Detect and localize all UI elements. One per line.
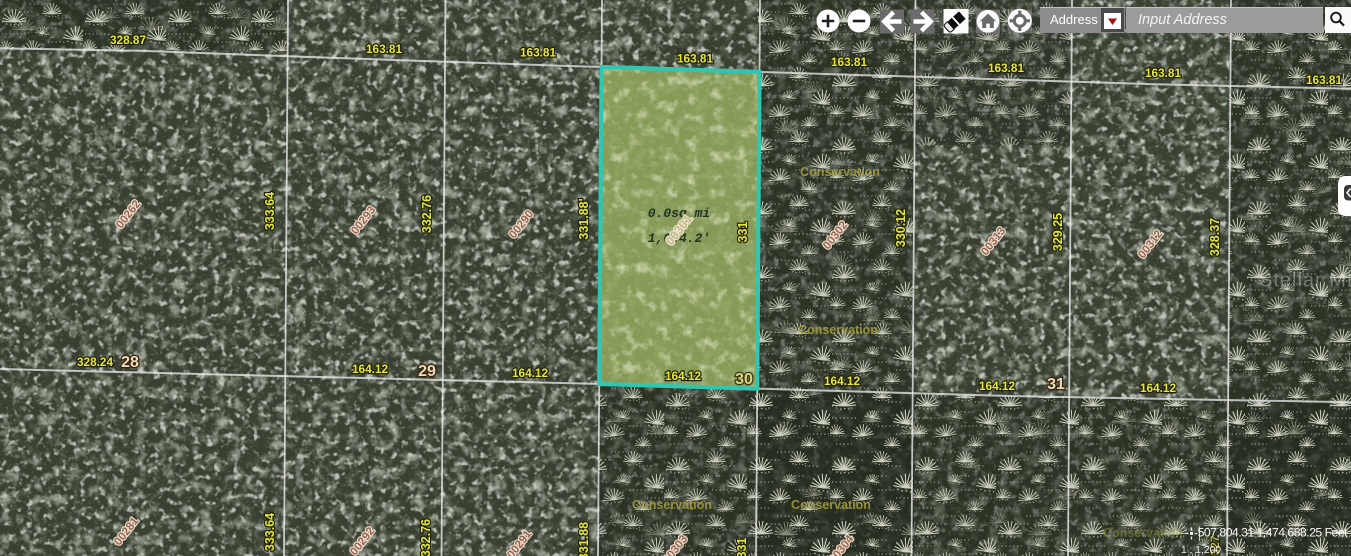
svg-text:331.88: 331.88 [577, 522, 591, 556]
svg-text:332.76: 332.76 [420, 195, 434, 233]
svg-text:333.64: 333.64 [263, 192, 277, 230]
svg-text:Conservation: Conservation [800, 165, 880, 179]
svg-text:164.12: 164.12 [824, 374, 861, 388]
svg-text:332.76: 332.76 [419, 519, 433, 556]
svg-text:328.37: 328.37 [1208, 218, 1222, 256]
svg-text:28: 28 [121, 354, 139, 371]
svg-text:331.88': 331.88' [577, 198, 591, 239]
svg-text:329.25: 329.25 [1051, 213, 1065, 251]
svg-text:328.24: 328.24 [77, 355, 114, 369]
svg-text:163.81: 163.81 [1306, 73, 1343, 87]
svg-text:Conservation: Conservation [791, 498, 871, 512]
svg-text:163.81: 163.81 [831, 55, 868, 69]
svg-text:Conservation: Conservation [798, 323, 878, 337]
svg-text:29: 29 [418, 363, 436, 380]
svg-text:30: 30 [735, 371, 753, 388]
svg-text:163.81: 163.81 [1145, 66, 1182, 80]
svg-text:31: 31 [1047, 376, 1065, 393]
svg-text:163.81: 163.81 [988, 61, 1025, 75]
svg-text:333.64: 333.64 [263, 513, 277, 551]
svg-text:1 : 1,200: 1 : 1,200 [1181, 545, 1221, 556]
svg-text:Conservation: Conservation [632, 498, 712, 512]
svg-text:164.12: 164.12 [512, 366, 549, 380]
svg-text:164.12: 164.12 [665, 369, 702, 383]
svg-text:163.81: 163.81 [520, 46, 557, 60]
svg-text:331: 331 [736, 222, 750, 243]
svg-text:331: 331 [735, 538, 749, 556]
svg-text:164.12: 164.12 [979, 379, 1016, 393]
svg-text:507,804.31 1,474,688.25 Feet: 507,804.31 1,474,688.25 Feet [1198, 526, 1349, 540]
svg-text:Stellar MLS: Stellar MLS [1259, 270, 1351, 292]
svg-text:Conservation: Conservation [1103, 526, 1183, 540]
svg-text:164.12: 164.12 [352, 362, 389, 376]
svg-text:330.12: 330.12 [894, 209, 908, 247]
svg-text:163.81: 163.81 [677, 52, 714, 66]
svg-text:164.12: 164.12 [1140, 381, 1177, 395]
